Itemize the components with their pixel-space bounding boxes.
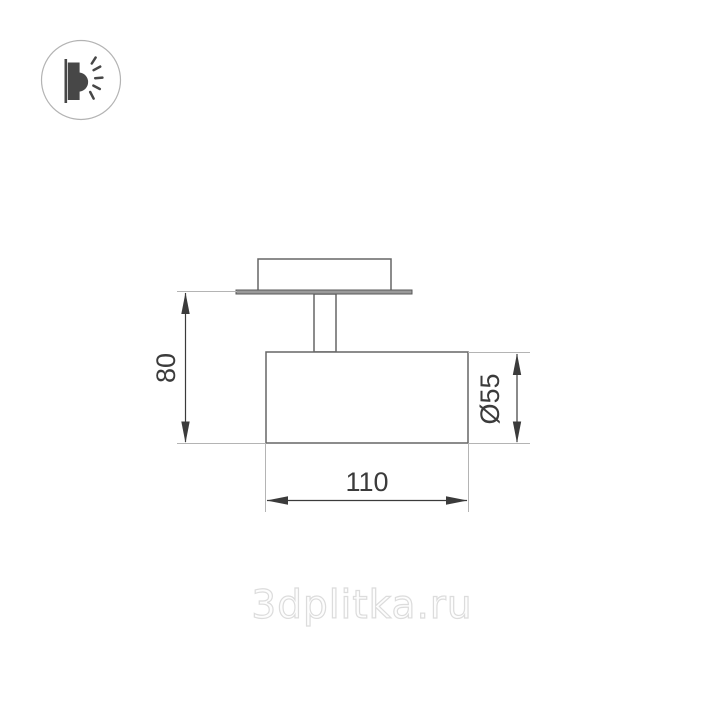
arrowhead-right [446, 496, 468, 504]
dimension-width-label: 110 [345, 467, 388, 497]
driver-box [258, 259, 391, 291]
extension-lines [177, 292, 266, 444]
wall-lamp-light-icon [65, 58, 103, 103]
arrowhead-up [513, 354, 521, 376]
dimension-width: 110 [266, 444, 469, 512]
arrowhead-down [513, 422, 521, 444]
lamp-body [266, 352, 468, 443]
dimension-height: 80 [151, 292, 266, 444]
arrowhead-up [181, 293, 189, 315]
watermark: 3dplitka.ru [251, 583, 472, 628]
lamp-dome [80, 73, 89, 92]
logo-badge [42, 41, 121, 120]
drawing-svg: 80 Ø55 110 3dplitka.ru [0, 0, 720, 720]
arrowhead-left [267, 496, 289, 504]
stem [314, 294, 336, 352]
dimension-height-label: 80 [151, 353, 181, 383]
lamp-wall-line [65, 59, 68, 103]
lamp-base-plate [68, 63, 80, 101]
fixture-drawing [236, 259, 468, 443]
technical-drawing-canvas: 80 Ø55 110 3dplitka.ru [0, 0, 720, 720]
light-rays [90, 58, 102, 99]
dimension-diameter-label: Ø55 [475, 373, 505, 424]
dimension-diameter: Ø55 [468, 353, 530, 444]
arrowhead-down [181, 422, 189, 444]
mounting-plate [236, 290, 412, 294]
